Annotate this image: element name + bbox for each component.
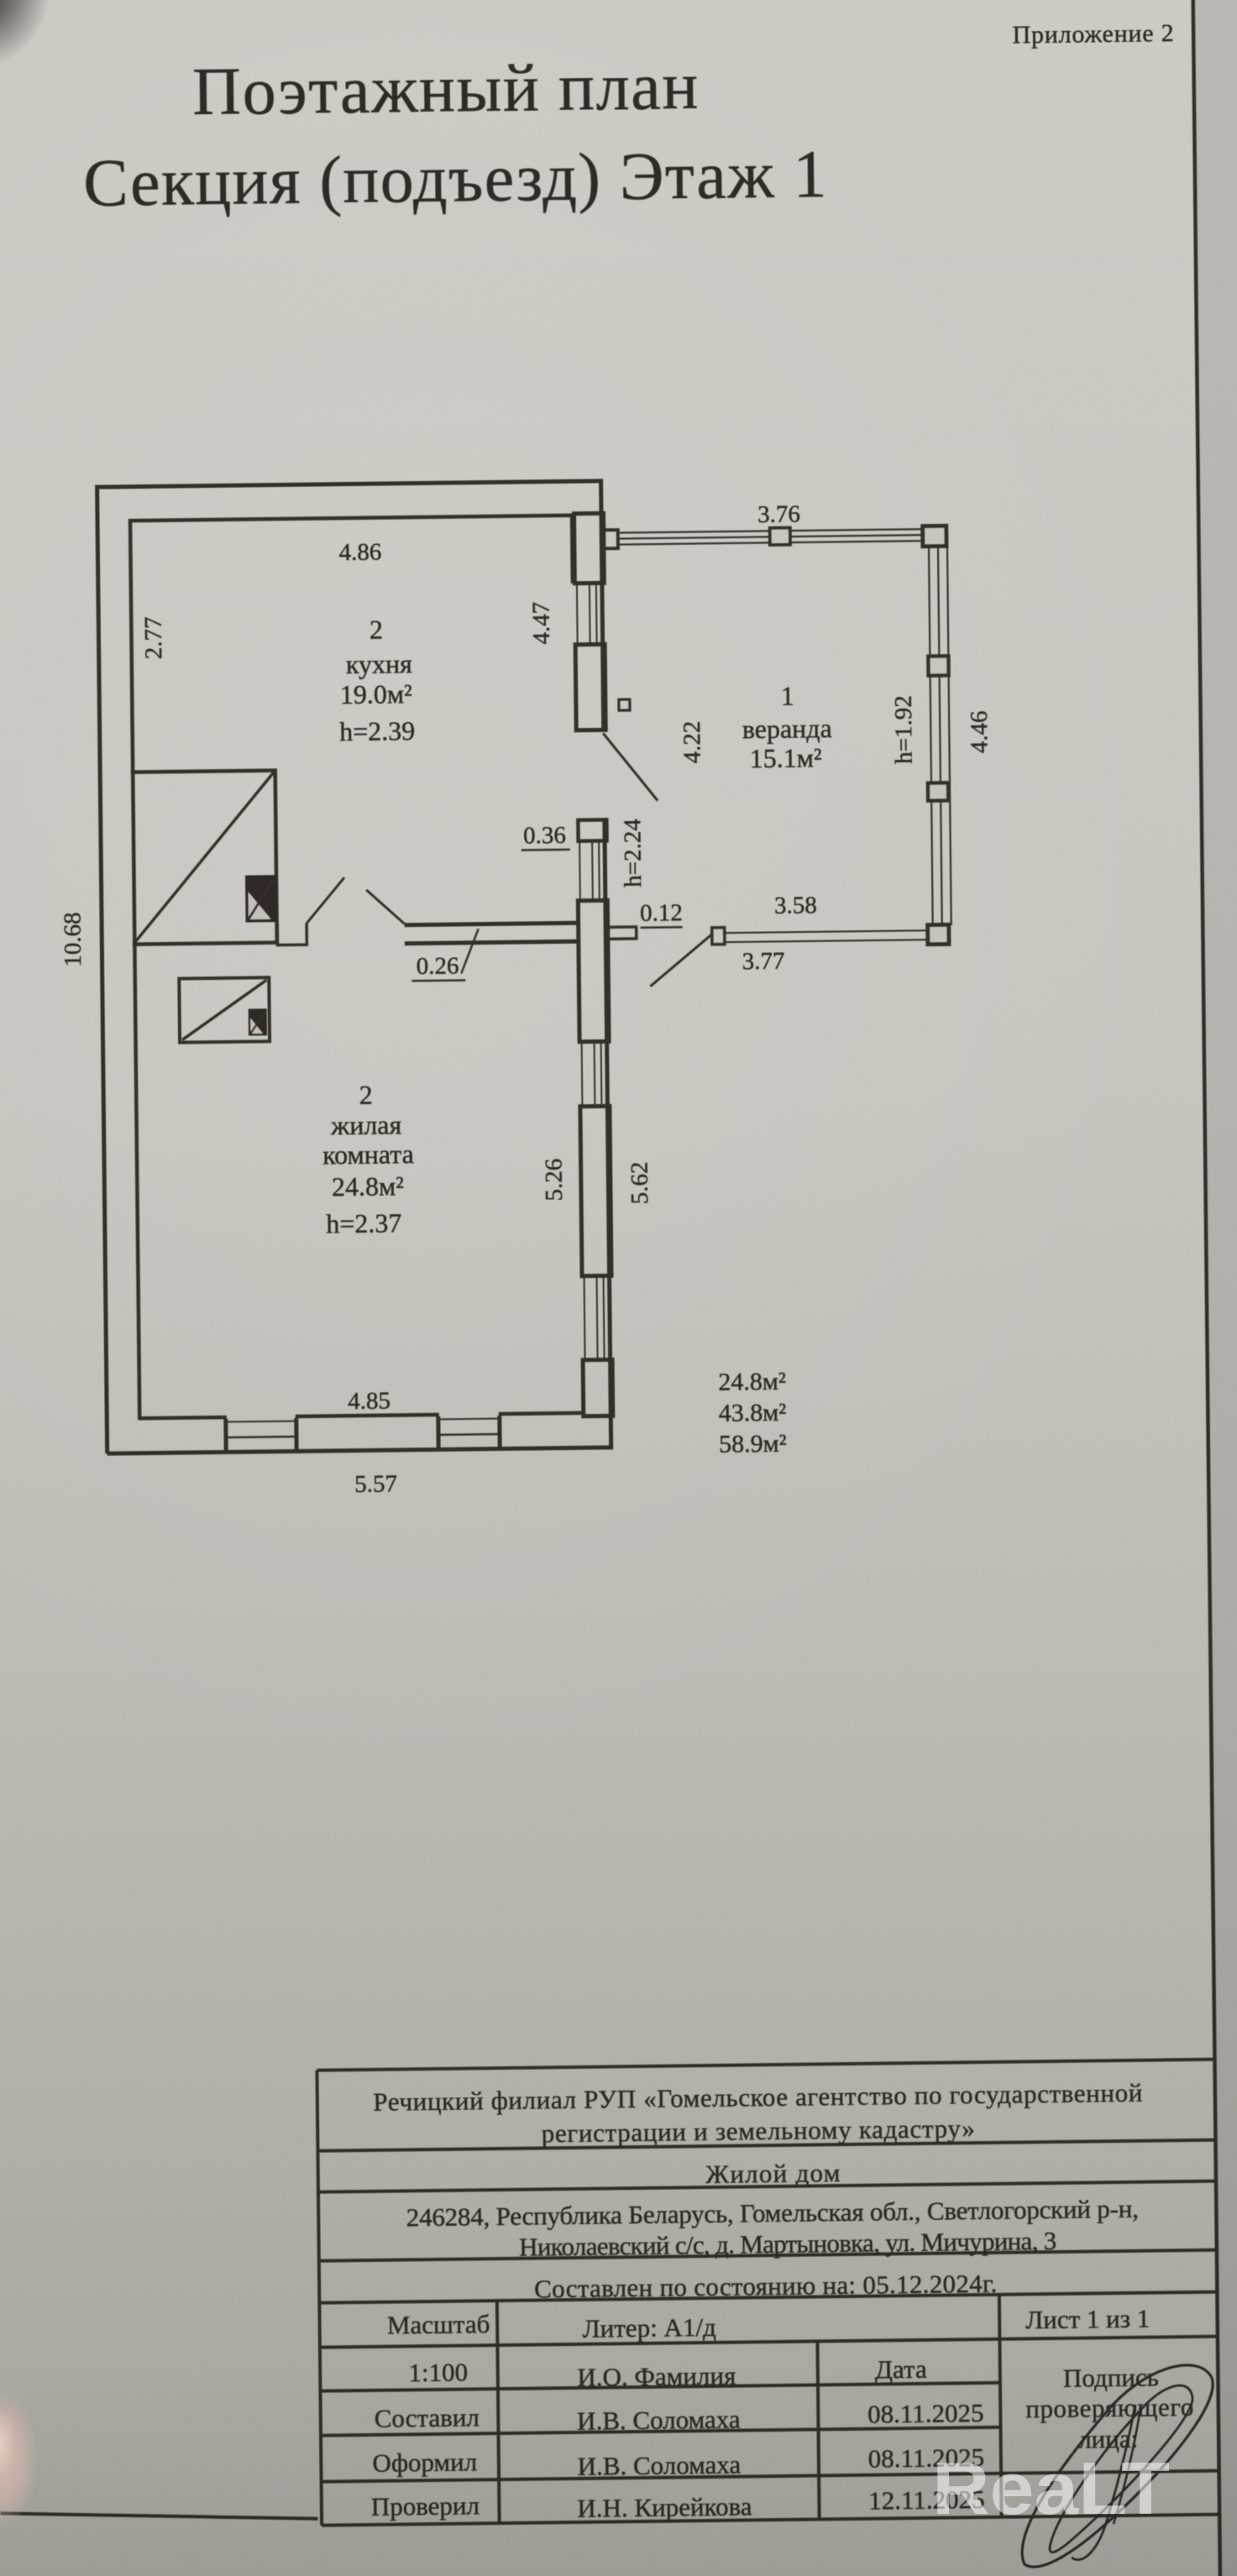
svg-text:ReaLT: ReaLT (932, 2447, 1170, 2530)
